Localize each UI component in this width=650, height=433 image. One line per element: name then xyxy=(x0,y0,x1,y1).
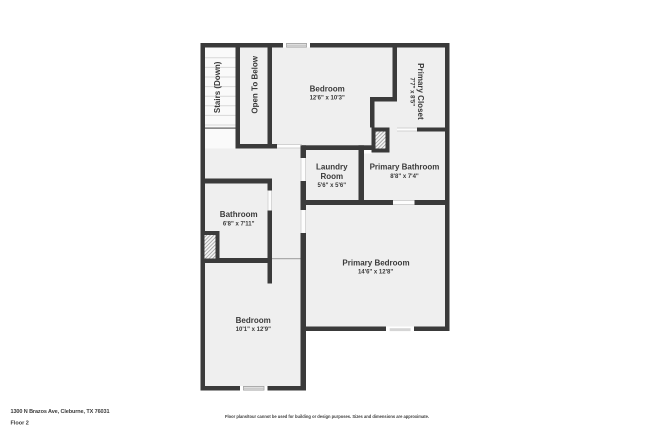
svg-text:Bathroom: Bathroom xyxy=(220,210,258,219)
svg-text:12'6" x 10'3": 12'6" x 10'3" xyxy=(310,96,345,102)
svg-text:Primary Closet: Primary Closet xyxy=(416,63,425,120)
svg-text:7'7" x 8'5": 7'7" x 8'5" xyxy=(409,78,415,107)
svg-text:10'1" x 12'9": 10'1" x 12'9" xyxy=(236,327,271,333)
svg-text:Laundry: Laundry xyxy=(316,162,348,171)
svg-text:6'8" x 7'11": 6'8" x 7'11" xyxy=(223,221,255,227)
svg-text:Bedroom: Bedroom xyxy=(236,316,271,325)
svg-text:14'6" x 12'8": 14'6" x 12'8" xyxy=(358,269,393,275)
svg-text:Floor 2: Floor 2 xyxy=(11,421,29,427)
svg-text:Bedroom: Bedroom xyxy=(310,85,345,94)
svg-text:Floor plans/tour cannot be use: Floor plans/tour cannot be used for buil… xyxy=(225,414,429,419)
svg-text:8'8" x 7'4": 8'8" x 7'4" xyxy=(390,174,419,180)
svg-text:Room: Room xyxy=(320,172,343,181)
svg-text:Primary Bedroom: Primary Bedroom xyxy=(342,258,409,267)
svg-text:Stairs (Down): Stairs (Down) xyxy=(213,61,222,113)
svg-text:Open To Below: Open To Below xyxy=(250,55,259,113)
svg-text:Primary Bathroom: Primary Bathroom xyxy=(370,163,440,172)
svg-text:5'6" x 5'6": 5'6" x 5'6" xyxy=(318,183,347,189)
svg-text:1300 N Brazos Ave, Cleburne, T: 1300 N Brazos Ave, Cleburne, TX 76031 xyxy=(11,409,110,415)
